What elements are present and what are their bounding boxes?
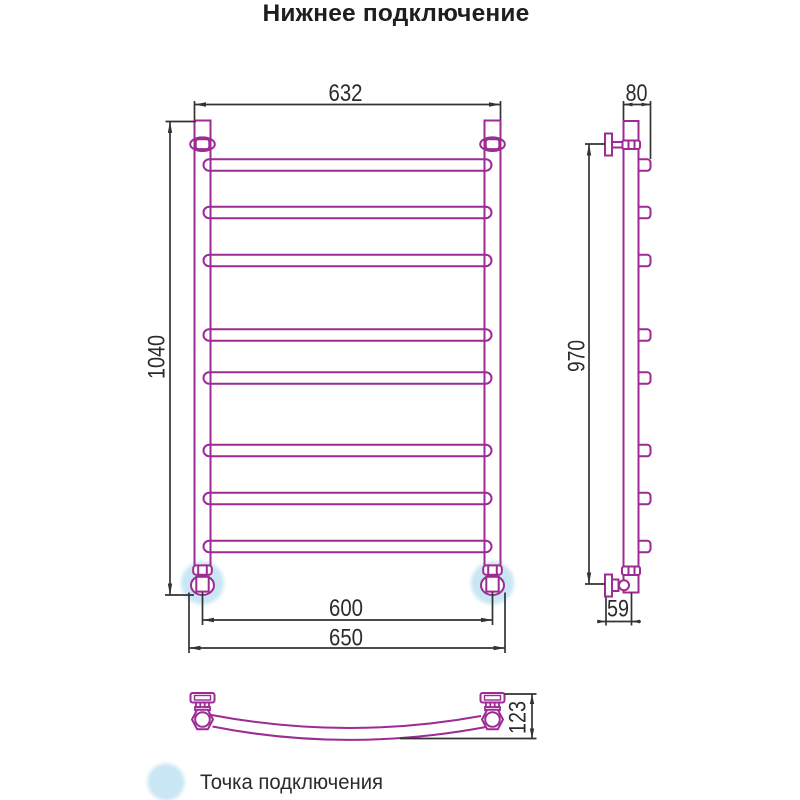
svg-text:632: 632: [329, 80, 363, 107]
svg-text:600: 600: [329, 595, 363, 622]
svg-text:123: 123: [505, 701, 532, 734]
svg-text:Нижнее подключение: Нижнее подключение: [262, 0, 529, 27]
svg-text:59: 59: [607, 596, 629, 623]
svg-text:Точка подключения: Точка подключения: [200, 770, 383, 794]
svg-text:80: 80: [626, 80, 648, 107]
svg-text:650: 650: [329, 625, 363, 652]
svg-text:970: 970: [564, 340, 591, 372]
svg-text:1040: 1040: [144, 335, 171, 379]
